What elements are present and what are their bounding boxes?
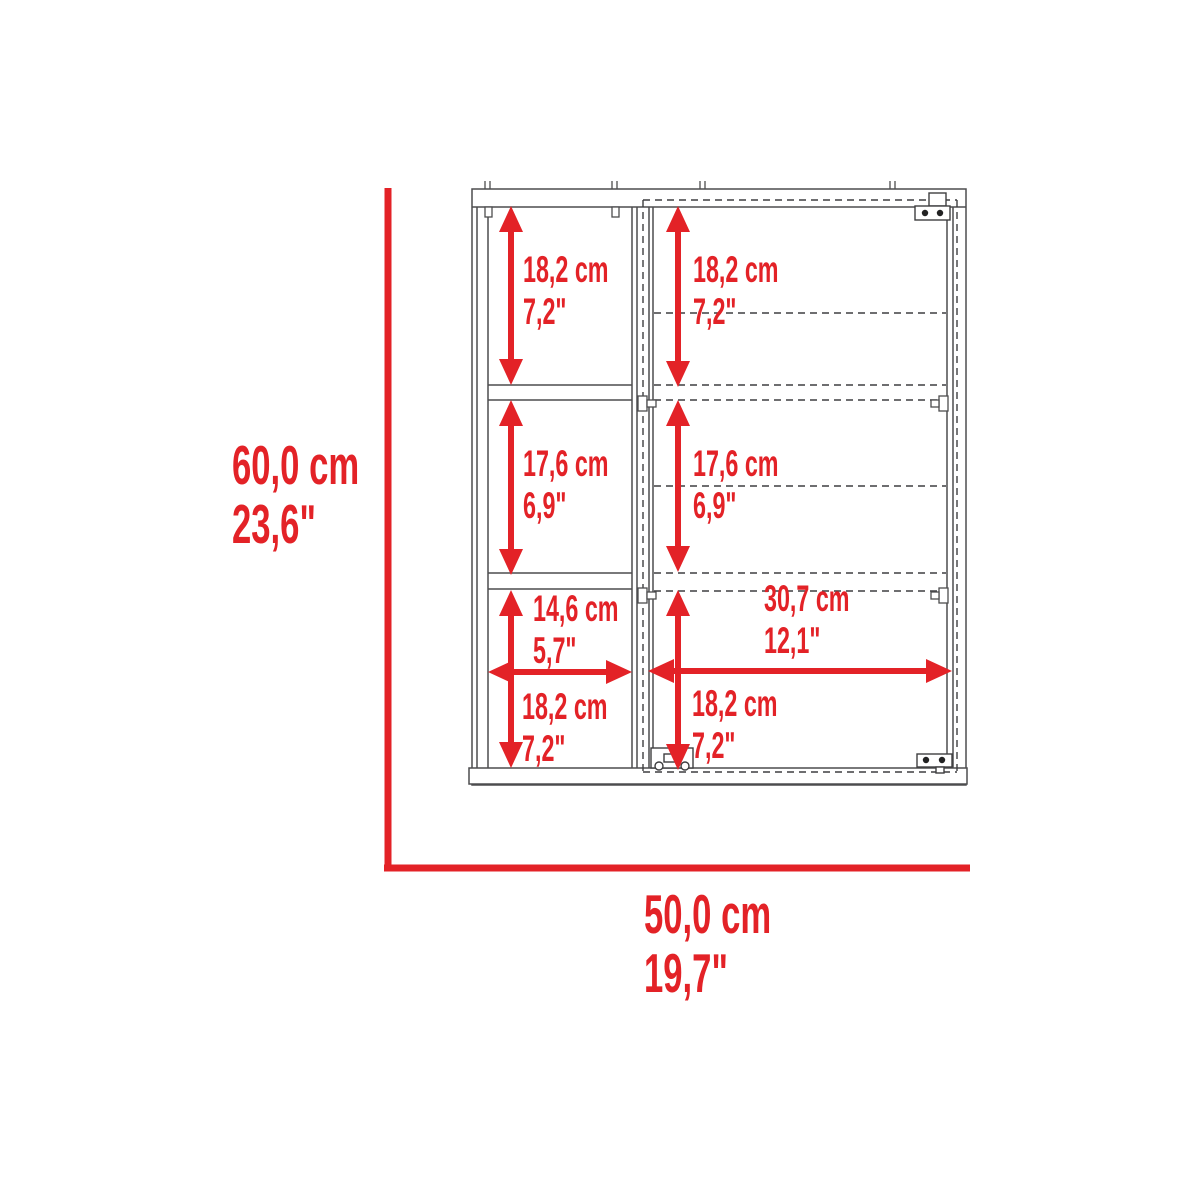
dimension-label-mid-right-shelf: 17,6 cm 6,9" [693,443,779,527]
dimension-value-in: 7,2" [692,725,778,767]
dimension-label-overall-height: 60,0 cm 23,6" [232,436,359,554]
screw-marks [485,181,895,217]
dimension-value-cm: 50,0 cm [644,885,771,944]
arrow-right-width [648,659,952,683]
dimension-value-cm: 14,6 cm [533,588,619,630]
dimension-label-top-left-shelf: 18,2 cm 7,2" [523,249,609,333]
dimension-value-in: 12,1" [764,620,850,662]
dimension-value-cm: 18,2 cm [692,683,778,725]
dimension-value-in: 7,2" [693,291,779,333]
shelf-clips [638,396,948,603]
dimension-value-in: 19,7" [644,944,771,1003]
dimension-value-cm: 18,2 cm [523,249,609,291]
dimension-label-overall-width: 50,0 cm 19,7" [644,885,771,1003]
dimension-value-in: 7,2" [523,291,609,333]
arrow-mid-left [499,400,523,575]
dimension-value-cm: 17,6 cm [523,443,609,485]
dimension-value-cm: 30,7 cm [764,578,850,620]
dimension-label-left-inner-width: 14,6 cm 5,7" [533,588,619,672]
arrow-top-left [499,206,523,385]
dimension-diagram-page: 60,0 cm 23,6" 50,0 cm 19,7" 18,2 cm 7,2"… [0,0,1200,1200]
dimension-value-in: 7,2" [522,728,608,770]
dimension-label-right-inner-width: 30,7 cm 12,1" [764,578,850,662]
dimension-label-bottom-right-shelf: 18,2 cm 7,2" [692,683,778,767]
dimension-value-in: 23,6" [232,495,359,554]
dimension-label-mid-left-shelf: 17,6 cm 6,9" [523,443,609,527]
dimension-value-in: 6,9" [693,485,779,527]
dimension-value-cm: 18,2 cm [522,686,608,728]
dimension-value-in: 6,9" [523,485,609,527]
dimension-value-in: 5,7" [533,630,619,672]
dimension-value-cm: 17,6 cm [693,443,779,485]
dimension-label-top-right-shelf: 18,2 cm 7,2" [693,249,779,333]
arrow-top-right [666,206,690,387]
dimension-value-cm: 18,2 cm [693,249,779,291]
door-hidden-lines [643,200,957,772]
dimension-value-cm: 60,0 cm [232,436,359,495]
dimension-label-bottom-left-shelf: 18,2 cm 7,2" [522,686,608,770]
